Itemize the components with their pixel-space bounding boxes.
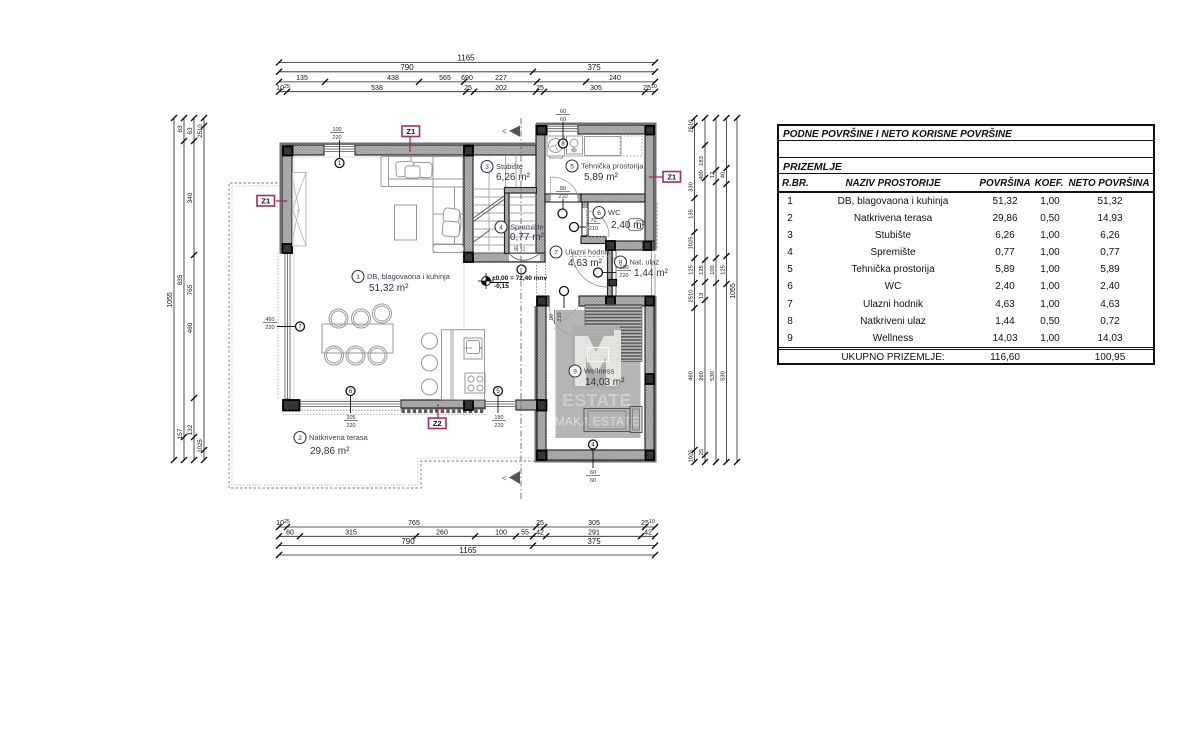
svg-text:-0,15: -0,15 <box>494 283 509 290</box>
svg-text:DB, blagovaona i kuhinja: DB, blagovaona i kuhinja <box>367 272 451 281</box>
svg-text:530: 530 <box>710 371 716 381</box>
svg-text:9: 9 <box>573 368 577 375</box>
svg-text:400: 400 <box>699 170 705 180</box>
svg-text:210: 210 <box>589 226 598 232</box>
svg-text:305: 305 <box>590 85 602 92</box>
svg-text:2510: 2510 <box>689 120 695 133</box>
svg-text:60: 60 <box>560 109 566 115</box>
svg-text:25: 25 <box>536 520 544 527</box>
svg-text:7: 7 <box>554 249 558 256</box>
svg-text:Z1: Z1 <box>261 197 270 206</box>
svg-text:260: 260 <box>436 530 448 537</box>
svg-text:305: 305 <box>588 520 600 527</box>
svg-text:1055: 1055 <box>167 292 174 308</box>
svg-text:227: 227 <box>495 75 507 82</box>
svg-text:4,63 m²: 4,63 m² <box>568 258 603 269</box>
svg-text:100: 100 <box>710 265 716 275</box>
svg-text:2510: 2510 <box>689 290 695 303</box>
svg-text:2: 2 <box>298 435 302 442</box>
svg-text:375: 375 <box>587 63 601 72</box>
svg-text:291: 291 <box>588 530 600 537</box>
svg-text:1165: 1165 <box>457 54 475 63</box>
svg-text:ESTATE: ESTATE <box>562 390 631 410</box>
svg-text:o: o <box>297 208 300 214</box>
svg-text:63: 63 <box>187 127 194 135</box>
svg-text:4: 4 <box>499 224 503 231</box>
svg-text:60: 60 <box>590 478 596 484</box>
svg-text:565: 565 <box>439 75 451 82</box>
svg-text:220: 220 <box>332 135 341 141</box>
svg-text:183: 183 <box>699 156 705 166</box>
svg-text:Stubište: Stubište <box>496 162 523 171</box>
svg-text:29,86 m²: 29,86 m² <box>310 446 350 457</box>
svg-text:60: 60 <box>590 470 596 476</box>
svg-text:80: 80 <box>560 186 566 192</box>
svg-text:2510: 2510 <box>641 519 655 527</box>
svg-text:220: 220 <box>346 423 355 429</box>
svg-text:125: 125 <box>689 265 695 275</box>
svg-text:460: 460 <box>187 322 194 333</box>
svg-text:Nat. ulaz: Nat. ulaz <box>630 258 660 267</box>
svg-text:<: < <box>502 127 507 136</box>
svg-text:132: 132 <box>187 424 194 435</box>
svg-text:1025: 1025 <box>689 237 695 250</box>
svg-text:1055: 1055 <box>730 283 737 299</box>
svg-text:125: 125 <box>699 265 705 275</box>
svg-text:MAKA ESTATE: MAKA ESTATE <box>555 415 640 429</box>
svg-text:260: 260 <box>699 371 705 381</box>
svg-text:WC: WC <box>608 208 621 217</box>
svg-text:220: 220 <box>619 273 628 279</box>
svg-text:Ulazni hodnik: Ulazni hodnik <box>565 248 610 257</box>
svg-text:1025: 1025 <box>198 439 204 453</box>
svg-text:340: 340 <box>187 192 194 203</box>
svg-text:240: 240 <box>609 75 621 82</box>
svg-text:1025: 1025 <box>689 450 695 463</box>
svg-text:315: 315 <box>345 530 357 537</box>
svg-text:135: 135 <box>689 209 695 219</box>
svg-text:42: 42 <box>644 530 652 537</box>
svg-text:125: 125 <box>721 265 727 275</box>
svg-text:0,77 m²: 0,77 m² <box>510 232 545 243</box>
svg-text:790: 790 <box>401 537 415 546</box>
svg-text:2510: 2510 <box>643 84 657 92</box>
svg-text:100: 100 <box>619 265 628 271</box>
svg-text:Spremište: Spremište <box>510 223 544 232</box>
svg-text:±0,00 = 72,40 mnv: ±0,00 = 72,40 mnv <box>492 275 547 282</box>
svg-text:330: 330 <box>689 182 695 192</box>
svg-text:25: 25 <box>464 85 472 92</box>
svg-text:13: 13 <box>699 293 705 299</box>
svg-text:220: 220 <box>494 423 503 429</box>
svg-text:690: 690 <box>461 75 473 82</box>
svg-text:538: 538 <box>371 85 383 92</box>
svg-text:80: 80 <box>549 314 555 320</box>
svg-text:765: 765 <box>187 284 194 295</box>
svg-text:100: 100 <box>332 127 341 133</box>
svg-text:25: 25 <box>699 449 705 455</box>
svg-text:Wellness: Wellness <box>584 367 615 376</box>
svg-text:835: 835 <box>177 274 184 285</box>
svg-text:100: 100 <box>495 530 507 537</box>
svg-text:220: 220 <box>265 325 274 331</box>
svg-text:1165: 1165 <box>459 546 477 555</box>
svg-text:375: 375 <box>587 537 601 546</box>
svg-text:Tehnička prostorija: Tehnička prostorija <box>581 162 644 171</box>
svg-text:2510: 2510 <box>198 124 204 138</box>
svg-text:790: 790 <box>400 63 414 72</box>
svg-text:180: 180 <box>494 415 503 421</box>
svg-text:1: 1 <box>356 274 360 281</box>
svg-text:2,40 m²: 2,40 m² <box>611 220 646 231</box>
svg-text:460: 460 <box>265 317 274 323</box>
svg-text:157: 157 <box>177 428 184 439</box>
svg-text:60: 60 <box>286 530 294 537</box>
svg-text:305: 305 <box>346 415 355 421</box>
svg-text:63: 63 <box>177 125 184 133</box>
svg-text:3: 3 <box>485 164 489 171</box>
svg-text:530: 530 <box>721 371 727 381</box>
svg-text:438: 438 <box>387 75 399 82</box>
svg-text:55: 55 <box>521 530 529 537</box>
svg-text:Z1: Z1 <box>406 127 415 136</box>
svg-text:6,26 m²: 6,26 m² <box>496 172 531 183</box>
svg-text:202: 202 <box>495 85 507 92</box>
svg-text:25: 25 <box>536 85 544 92</box>
svg-text:6: 6 <box>597 210 601 217</box>
svg-text:5,89 m²: 5,89 m² <box>584 172 619 183</box>
svg-text:135: 135 <box>296 75 308 82</box>
svg-text:Natkrivena terasa: Natkrivena terasa <box>309 433 369 442</box>
svg-text:70: 70 <box>590 218 596 224</box>
svg-text:460: 460 <box>689 371 695 381</box>
svg-text:210: 210 <box>557 312 563 321</box>
svg-text:40: 40 <box>721 172 727 178</box>
svg-text:1,44 m²: 1,44 m² <box>634 268 669 279</box>
svg-text:12: 12 <box>710 172 716 178</box>
svg-text:14,03 m²: 14,03 m² <box>585 377 625 388</box>
svg-text:765: 765 <box>408 520 420 527</box>
svg-text:<: < <box>502 474 507 483</box>
svg-text:Z1: Z1 <box>667 173 676 182</box>
svg-text:Z2: Z2 <box>433 419 442 428</box>
svg-text:42: 42 <box>536 530 544 537</box>
svg-text:5: 5 <box>570 163 574 170</box>
svg-text:51,32 m²: 51,32 m² <box>369 283 409 294</box>
